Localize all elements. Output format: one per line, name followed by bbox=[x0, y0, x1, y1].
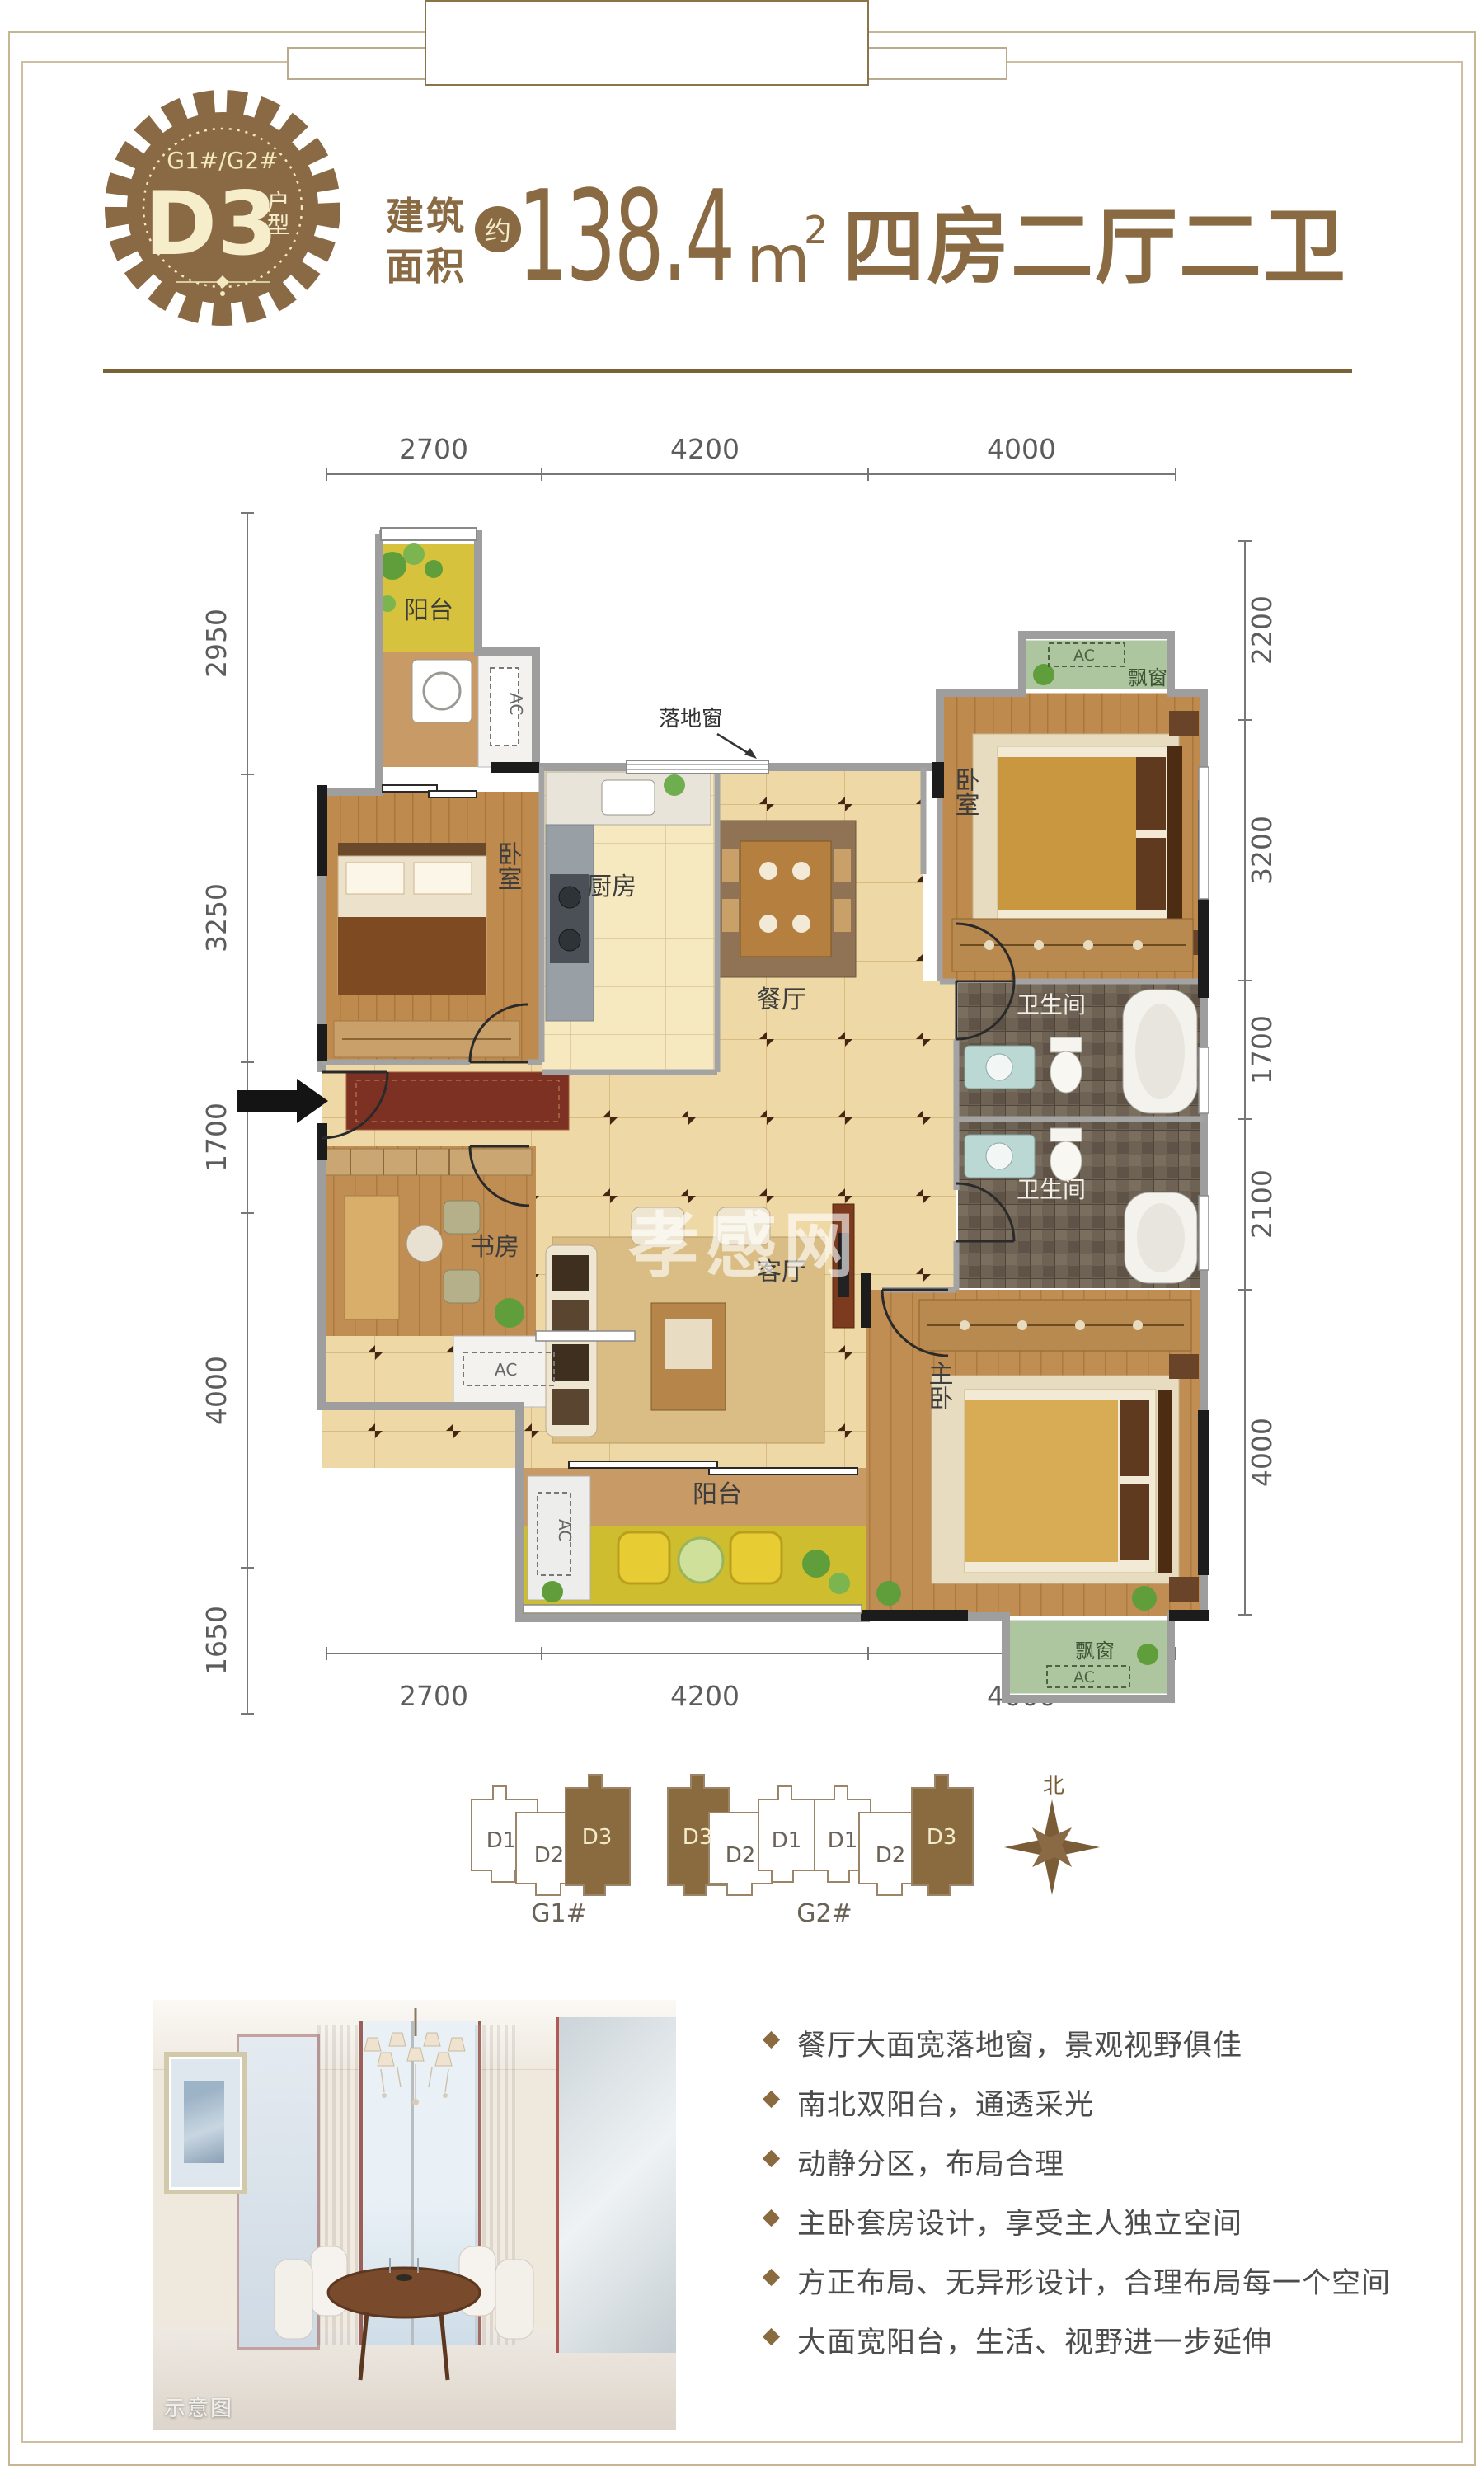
feature-text: 南北双阳台，通透采光 bbox=[797, 2082, 1094, 2124]
dim-left-2: 3250 bbox=[200, 883, 232, 953]
label-bath-lower: 卫生间 bbox=[1017, 1176, 1086, 1203]
svg-text:AC: AC bbox=[506, 693, 526, 715]
dim-right-1: 2200 bbox=[1246, 595, 1278, 665]
label-balcony-north: 阳台 bbox=[404, 596, 453, 625]
diamond-bullet-icon bbox=[763, 2269, 780, 2286]
g1-unit-d2: D2 bbox=[534, 1843, 565, 1868]
label-bedroom-right: 卧室 bbox=[951, 767, 979, 816]
diamond-bullet-icon bbox=[763, 2209, 780, 2227]
feature-item: 主卧套房设计，享受主人独立空间 bbox=[765, 2200, 1441, 2260]
g1-unit-d3: D3 bbox=[582, 1825, 613, 1850]
diamond-bullet-icon bbox=[763, 2328, 780, 2345]
feature-text: 方正布局、无异形设计，合理布局每一个空间 bbox=[797, 2260, 1391, 2302]
feature-list: 餐厅大面宽落地窗，景观视野俱佳 南北双阳台，通透采光 动静分区，布局合理 主卧套… bbox=[765, 2022, 1441, 2378]
label-bedroom-left: 卧室 bbox=[493, 841, 522, 891]
photo-wall-art bbox=[164, 2052, 247, 2195]
photo-dining-set bbox=[268, 2223, 540, 2405]
g1-label: G1# bbox=[531, 1899, 586, 1928]
svg-text:AC: AC bbox=[1073, 647, 1095, 665]
photo-mirror-wall bbox=[556, 2017, 676, 2353]
label-dining: 餐厅 bbox=[757, 985, 806, 1014]
feature-item: 大面宽阳台，生活、视野进一步延伸 bbox=[765, 2319, 1441, 2378]
feature-item: 动静分区，布局合理 bbox=[765, 2141, 1441, 2200]
g2-unit-d2b: D2 bbox=[876, 1843, 906, 1868]
photo-chandelier bbox=[341, 2008, 490, 2132]
north-label: 北 bbox=[1043, 1774, 1064, 1799]
dim-bottom-2: 4200 bbox=[670, 1680, 740, 1712]
unit-badge: G1#/G2# D3 户型 bbox=[97, 82, 349, 334]
badge-building-codes: G1#/G2# bbox=[167, 147, 278, 174]
dim-right-3: 1700 bbox=[1246, 1015, 1278, 1084]
dim-left-1: 2950 bbox=[200, 609, 232, 678]
g2-unit-d3b: D3 bbox=[927, 1825, 957, 1850]
g2-unit-d1b: D1 bbox=[828, 1828, 858, 1853]
dim-right-2: 3200 bbox=[1246, 816, 1278, 885]
dim-top-2: 4200 bbox=[670, 433, 740, 465]
feature-text: 动静分区，布局合理 bbox=[797, 2141, 1064, 2183]
dim-top-3: 4000 bbox=[987, 433, 1056, 465]
dim-left-3: 1700 bbox=[200, 1103, 232, 1172]
g1-unit-d1: D1 bbox=[486, 1828, 517, 1853]
badge-ornament-dot bbox=[220, 291, 225, 296]
feature-item: 南北双阳台，通透采光 bbox=[765, 2082, 1441, 2141]
site-plan: D1 D2 D3 G1# D3 D2 D1 D1 D2 D3 G2# 北 bbox=[462, 1765, 1121, 1955]
label-floor-window: 落地窗 bbox=[659, 707, 723, 731]
entry-arrow-icon bbox=[237, 1079, 328, 1123]
dim-left-5: 1650 bbox=[200, 1606, 232, 1675]
label-master: 主卧 bbox=[924, 1361, 953, 1410]
feature-text: 餐厅大面宽落地窗，景观视野俱佳 bbox=[797, 2022, 1242, 2064]
bay-bottom-plant bbox=[1137, 1644, 1158, 1665]
approx-badge: 约 bbox=[475, 206, 521, 252]
label-bath-upper: 卫生间 bbox=[1017, 991, 1086, 1018]
floor-window-glass bbox=[627, 760, 768, 774]
feature-item: 餐厅大面宽落地窗，景观视野俱佳 bbox=[765, 2022, 1441, 2082]
feature-item: 方正布局、无异形设计，合理布局每一个空间 bbox=[765, 2260, 1441, 2319]
top-plaque-left bbox=[287, 47, 429, 80]
label-kitchen: 厨房 bbox=[587, 873, 636, 901]
watermark: 孝感网 bbox=[628, 1205, 861, 1287]
badge-unit-suffix: 户型 bbox=[264, 190, 291, 236]
g2-unit-d3a: D3 bbox=[683, 1825, 713, 1850]
dim-right-5: 4000 bbox=[1246, 1418, 1278, 1487]
badge-unit: D3 bbox=[144, 173, 278, 275]
area-label-bottom: 面积 bbox=[386, 242, 467, 292]
dim-bottom-1: 2700 bbox=[399, 1680, 468, 1712]
g2-label: G2# bbox=[796, 1899, 852, 1928]
g2-unit-d2a: D2 bbox=[726, 1843, 756, 1868]
top-plaque-right bbox=[866, 47, 1007, 80]
dim-right-4: 2100 bbox=[1246, 1169, 1278, 1239]
photo-wall-art-canvas bbox=[184, 2081, 224, 2163]
label-study: 书房 bbox=[470, 1233, 519, 1262]
svg-text:AC: AC bbox=[1073, 1668, 1095, 1686]
approx-text: 约 bbox=[485, 210, 511, 248]
layout-summary: 四房二厅二卫 bbox=[843, 180, 1347, 299]
svg-text:AC: AC bbox=[495, 1360, 517, 1380]
area-label-top: 建筑 bbox=[386, 191, 467, 242]
dining-set bbox=[717, 821, 856, 977]
g2-unit-d1a: D1 bbox=[772, 1828, 802, 1853]
interior-photo: 示意图 bbox=[153, 2000, 676, 2430]
header-divider bbox=[103, 369, 1352, 373]
area-value: 138.4 bbox=[518, 163, 734, 309]
area-unit-sup: 2 bbox=[804, 208, 828, 252]
label-balcony-south: 阳台 bbox=[693, 1480, 742, 1509]
building-g2: D3 D2 D1 D1 D2 D3 bbox=[668, 1775, 973, 1895]
label-bay-window-bottom: 飘窗 bbox=[1075, 1639, 1115, 1663]
area-unit: m bbox=[746, 221, 810, 298]
floor-window-annotation: 落地窗 bbox=[659, 707, 757, 759]
feature-text: 大面宽阳台，生活、视野进一步延伸 bbox=[797, 2319, 1272, 2361]
dim-left-4: 4000 bbox=[200, 1356, 232, 1425]
label-bay-window-top: 飘窗 bbox=[1128, 666, 1167, 689]
floor-plan: 2700 4200 4000 2700 4200 4000 2950 3250 … bbox=[140, 412, 1344, 1765]
top-plaque-center bbox=[425, 0, 869, 86]
diamond-bullet-icon bbox=[763, 2031, 780, 2049]
dim-top-1: 2700 bbox=[399, 433, 468, 465]
photo-caption: 示意图 bbox=[164, 2392, 233, 2422]
feature-text: 主卧套房设计，享受主人独立空间 bbox=[797, 2200, 1242, 2242]
north-compass-icon: 北 bbox=[1004, 1774, 1100, 1895]
diamond-bullet-icon bbox=[763, 2150, 780, 2167]
diamond-bullet-icon bbox=[763, 2091, 780, 2108]
building-g1: D1 D2 D3 bbox=[472, 1775, 630, 1895]
area-label: 建筑 面积 bbox=[386, 191, 467, 291]
floorplan-poster: G1#/G2# D3 户型 建筑 面积 约 138.4 m 2 四房二厅二卫 bbox=[0, 0, 1484, 2479]
bay-top-plant bbox=[1033, 664, 1054, 685]
svg-text:AC: AC bbox=[555, 1519, 575, 1541]
